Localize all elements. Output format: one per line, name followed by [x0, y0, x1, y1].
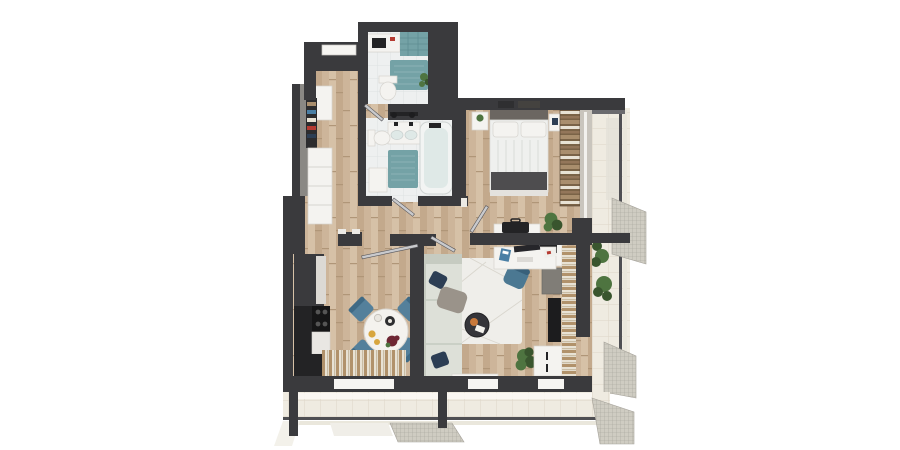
- mesh-panel-right-upper: [612, 198, 646, 264]
- nightstand-book: [552, 118, 558, 125]
- tall-cabinet-front: [316, 256, 326, 304]
- wc-sink: [372, 38, 386, 48]
- open-wardrobe: [560, 110, 580, 206]
- wall-living-right: [576, 245, 590, 337]
- pillow-left: [493, 122, 518, 137]
- corner-sofa: [418, 254, 469, 388]
- wall-block-right-of-wc: [428, 22, 458, 118]
- keyboard: [517, 257, 533, 262]
- bathtub-inner: [424, 128, 448, 188]
- stub-white-cap: [352, 229, 360, 234]
- double-bed: [490, 108, 548, 196]
- wall-bath-bottom-left: [358, 196, 392, 206]
- wall-hall-stub: [338, 232, 362, 246]
- floor-plan-svg: [0, 0, 900, 450]
- wall-white-cap: [461, 198, 467, 207]
- wall-bath-bottom-right: [418, 196, 468, 206]
- bedroom-window-glass: [584, 112, 587, 233]
- shower-head-right: [409, 112, 415, 118]
- wc-red-accessory: [390, 37, 395, 41]
- sofa-armrest-top: [418, 254, 462, 264]
- floor-plan-image: [0, 0, 900, 450]
- mesh-panel-bottom: [390, 423, 464, 442]
- wc-toilet-bowl: [380, 82, 396, 100]
- bed-foot: [490, 190, 548, 196]
- wall-bath-right: [452, 104, 466, 200]
- living-curtains: [562, 246, 576, 378]
- mesh-panel-right-lower: [604, 342, 636, 398]
- shower-head-left: [391, 112, 397, 118]
- pastry: [374, 339, 380, 345]
- window-kitchen: [334, 379, 394, 389]
- support-post-left: [289, 392, 298, 436]
- plate: [374, 314, 381, 321]
- sink-basin-right: [405, 130, 417, 139]
- burner: [316, 310, 321, 315]
- mesh-panel-corner: [592, 398, 634, 444]
- tv: [548, 298, 561, 342]
- wall-wc-left: [358, 22, 368, 104]
- wall-closet-block: [285, 196, 305, 254]
- cooktop: [312, 306, 330, 332]
- window-living-right: [538, 379, 564, 389]
- open-closet-clothes: [306, 98, 317, 148]
- dark-throw: [491, 172, 547, 190]
- wall-bedroom-top: [458, 98, 625, 110]
- wall-bath-left: [358, 120, 366, 202]
- lowboard-handle: [546, 364, 548, 372]
- burner: [323, 310, 328, 315]
- mesh-panel-bottom-faint: [330, 423, 393, 436]
- roof-edge: [592, 110, 625, 114]
- stub-white-cap: [338, 229, 346, 234]
- faucet-left: [394, 122, 398, 126]
- storage-cabinet: [542, 268, 562, 294]
- wall-kitchen-living-divider: [410, 246, 424, 392]
- coffee-cup: [388, 319, 392, 323]
- faucet-right: [409, 122, 413, 126]
- nightstand-plant: [476, 114, 483, 121]
- wall-entry-left: [304, 42, 316, 100]
- window-living-left: [468, 379, 498, 389]
- balcony-panel: [606, 118, 621, 200]
- burner: [316, 322, 321, 327]
- bathtub-faucet: [429, 123, 441, 128]
- balcony-right: [590, 108, 646, 398]
- wall-bedroom-bottom: [470, 233, 572, 245]
- wall-t-junction: [390, 234, 436, 246]
- burner: [323, 322, 328, 327]
- wall-art-right: [518, 101, 540, 108]
- entry-wardrobe: [315, 56, 358, 71]
- croissant: [368, 330, 375, 337]
- balcony-bottom: [274, 392, 634, 446]
- entry-door: [322, 45, 356, 55]
- wall-outer-left-upper: [292, 84, 300, 198]
- wall-art-left: [498, 101, 514, 108]
- bathroom-toilet-bowl: [374, 131, 390, 145]
- kitchen-curtains: [322, 350, 406, 376]
- wall-balcony-divider: [572, 233, 630, 243]
- lowboard-handle: [546, 352, 548, 360]
- pillow-right: [521, 122, 546, 137]
- sink-basin-left: [391, 130, 403, 139]
- bathroom-cabinet: [369, 168, 387, 192]
- sofa-seats: [426, 254, 462, 388]
- support-post-mid: [438, 392, 447, 428]
